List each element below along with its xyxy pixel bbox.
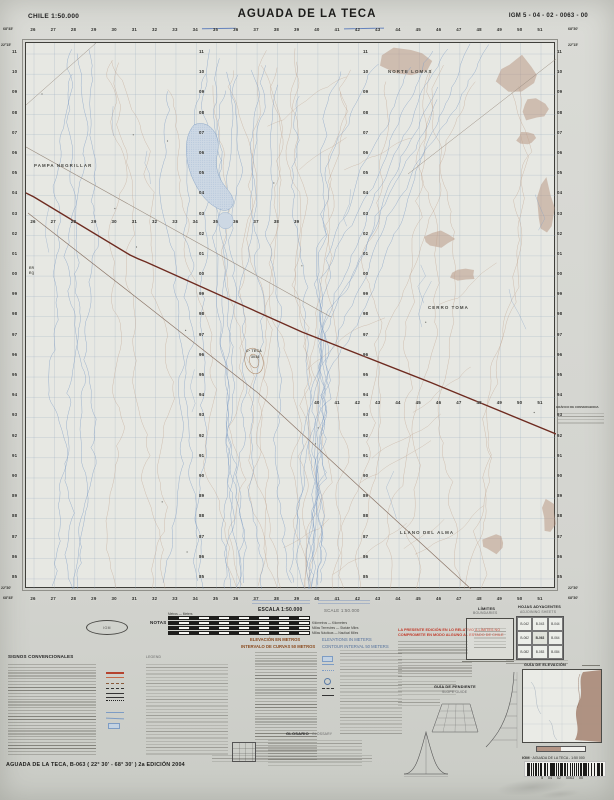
adjoining-sheets-grid: B-042B-043B-044B-062B-063B-064B-082B-083… bbox=[516, 616, 564, 660]
place-label: LLANO DEL ALMA bbox=[400, 530, 454, 535]
adjoining-sheet-cell: B-084 bbox=[548, 645, 563, 659]
footer-center-fineprint bbox=[212, 755, 372, 763]
adjoining-header-en: ADJOINING SHEETS bbox=[520, 610, 556, 614]
boundary-symbol-chip bbox=[106, 700, 124, 701]
adjoining-sheet-cell: B-083 bbox=[532, 645, 547, 659]
spring-symbol-chip bbox=[324, 678, 331, 685]
scale-bar bbox=[168, 626, 310, 630]
barcode-title: IGM · AGUADA DE LA TECA - 1:50 000 bbox=[522, 755, 585, 760]
adjoining-sheet-cell: B-064 bbox=[548, 631, 563, 645]
slope-guide-header-en: SLOPE GUIDE bbox=[442, 690, 467, 694]
legend-en-header: LEGEND bbox=[146, 655, 161, 659]
slope-curve-diagram bbox=[484, 670, 520, 750]
stream-symbol-chip bbox=[106, 712, 124, 713]
lake-symbol-chip bbox=[108, 723, 120, 729]
scale-bar bbox=[168, 631, 310, 635]
elevation-units-en: ELEVATIONS IN METERS bbox=[322, 637, 372, 642]
place-label: EQ bbox=[29, 271, 35, 275]
glosario-header: GLOSARIO bbox=[286, 731, 309, 736]
scale-bar bbox=[168, 616, 310, 620]
water-symbol-chip bbox=[322, 664, 334, 665]
footer-sheet-line: AGUADA DE LA TECA, B-063 ( 22° 30' - 68°… bbox=[6, 762, 185, 768]
notes-paragraphs bbox=[340, 650, 402, 734]
place-label: ER bbox=[29, 266, 34, 270]
railroad-symbol-chip bbox=[106, 693, 124, 698]
slope-guide-diagram bbox=[428, 696, 482, 736]
signos-header: SIGNOS CONVENCIONALES bbox=[8, 654, 73, 659]
adjoining-sheet-cell: B-044 bbox=[548, 617, 563, 631]
scale-title: ESCALA 1:50.000 bbox=[258, 607, 303, 613]
place-label: NORTE LOMAS bbox=[388, 69, 433, 74]
glossary-header-en: GLOSSARY bbox=[312, 732, 332, 736]
place-label: 3046 bbox=[251, 355, 260, 359]
track-symbol-chip bbox=[106, 683, 124, 684]
scalebar-label-km: Kilómetros — Kilometers bbox=[312, 621, 347, 625]
misc-symbol-chip bbox=[322, 695, 334, 696]
limites-box bbox=[466, 618, 514, 660]
map-sheet-page: CHILE 1:50.000 AGUADA DE LA TECA IGM 5 -… bbox=[0, 0, 614, 800]
credits-fineprint bbox=[398, 659, 472, 677]
adjoining-sheet-cell: B-082 bbox=[517, 645, 532, 659]
scalebar-metros-label: Metros — Meters bbox=[168, 612, 192, 616]
road-symbol-chip bbox=[106, 672, 124, 674]
elevation-guide-scalebar bbox=[536, 746, 586, 752]
adjoining-sheet-cell: B-042 bbox=[517, 617, 532, 631]
elevation-guide-note bbox=[582, 665, 600, 666]
trail-symbol-chip bbox=[106, 688, 124, 689]
projection-note-blue bbox=[252, 600, 310, 606]
water-symbol-chip bbox=[322, 670, 334, 671]
scale-title-en: SCALE 1:50.000 bbox=[324, 608, 360, 613]
scalebar-label-mi: Millas Terrestres — Statute Miles bbox=[312, 626, 359, 630]
elevation-guide-header: GUÍA DE ELEVACIÓN bbox=[524, 663, 566, 667]
contour-interval-es: INTERVALO DE CURVAS 50 METROS bbox=[241, 644, 315, 649]
signos-fineprint-right bbox=[146, 664, 228, 756]
igm-logo: IGM bbox=[86, 620, 128, 635]
signos-fineprint-left bbox=[8, 664, 96, 756]
scalebar-label-nmi: Millas Náuticas — Nautical Miles bbox=[312, 631, 358, 635]
place-label: PAMPA NEGRILLAR bbox=[34, 163, 92, 168]
adjoining-sheet-cell: B-063 bbox=[532, 631, 547, 645]
place-label: CERRO TOMA bbox=[428, 305, 469, 310]
water-symbol-chip bbox=[322, 656, 333, 662]
adjoining-sheet-cell: B-062 bbox=[517, 631, 532, 645]
credits-fineprint bbox=[398, 641, 468, 655]
notas-header: NOTAS bbox=[150, 620, 166, 625]
adjoining-sheet-cell: B-043 bbox=[532, 617, 547, 631]
contour-interval-en: CONTOUR INTERVAL 50 METERS bbox=[322, 644, 389, 649]
place-label: Cº TECA bbox=[246, 349, 262, 353]
scale-bar bbox=[168, 621, 310, 625]
projection-note-blue bbox=[318, 600, 370, 606]
convergence-graph-fineprint bbox=[558, 413, 604, 425]
boundaries-header-en: BOUNDARIES bbox=[473, 611, 497, 615]
slope-guide-header: GUÍA DE PENDIENTE bbox=[434, 685, 476, 689]
road-symbol-chip bbox=[106, 677, 124, 678]
elevation-units-es: ELEVACIÓN EN METROS bbox=[250, 637, 300, 642]
hojas-header: HOJAS ADYACENTES bbox=[518, 605, 561, 609]
misc-symbol-chip bbox=[322, 688, 334, 689]
elevation-guide-map bbox=[522, 669, 602, 743]
convergence-graph-title: GRÁFICO DE CONVERGENCIA bbox=[556, 405, 610, 409]
